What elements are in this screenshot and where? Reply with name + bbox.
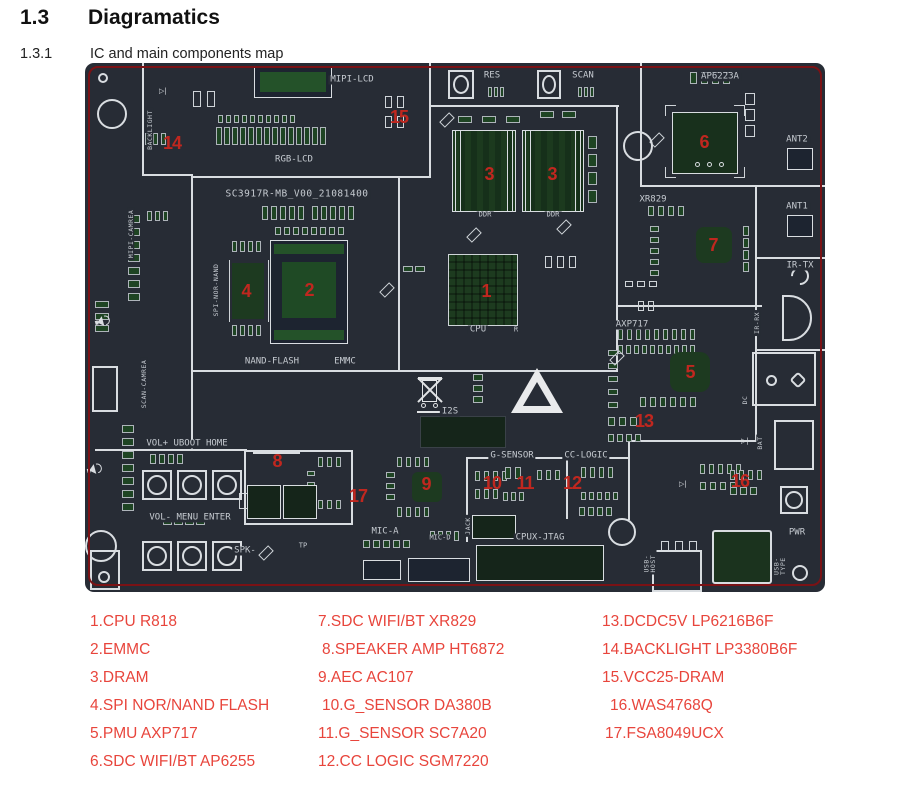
component-pad (537, 470, 542, 480)
ir-tx-label: IR-TX (784, 262, 815, 271)
trace-line (191, 174, 193, 451)
component-pad (95, 301, 109, 308)
marker-12: 12 (563, 474, 581, 492)
component-pad (256, 325, 261, 336)
mipi-lcd-label: MIPI-LCD (328, 76, 375, 85)
component-pad (406, 457, 411, 467)
component-pad (743, 238, 749, 248)
ap6223a-label: AP6223A (699, 73, 741, 82)
component-pad (650, 397, 656, 407)
component-pad (626, 345, 631, 354)
component-pad (660, 397, 666, 407)
component-pad (634, 345, 639, 354)
component-pad (274, 115, 279, 123)
component-pad (636, 329, 641, 340)
component-pad (650, 259, 659, 265)
component-pad (150, 454, 156, 464)
component-pad (690, 72, 697, 84)
component-pad (266, 115, 271, 123)
component-pad (650, 248, 659, 254)
axp717-label: AXP717 (614, 321, 651, 330)
trace-line (429, 105, 619, 107)
legend-item: 6.SDC WIFI/BT AP6255 (90, 748, 269, 776)
component-pad (710, 482, 716, 490)
tp-label: TP (297, 543, 309, 550)
bottom-pin-connector (408, 558, 470, 582)
component-pad (613, 492, 618, 500)
component-pad (700, 464, 705, 474)
component-pad (588, 507, 594, 516)
component-pad (339, 206, 345, 220)
component-pad (264, 127, 270, 145)
component-pad (663, 329, 668, 340)
component-pad (606, 507, 612, 516)
spk-label: SPK- (232, 547, 258, 556)
component-pad (302, 227, 308, 235)
component-pad (473, 396, 483, 403)
component-pad (258, 115, 263, 123)
component-pad (690, 329, 695, 340)
component-pad (424, 457, 429, 467)
pwr-label: PWR (787, 529, 807, 538)
component-pad (383, 540, 390, 548)
component-pad (681, 329, 686, 340)
component-pad (280, 206, 286, 220)
component-pad (588, 154, 597, 167)
bat-label: BAT (757, 434, 764, 451)
component-pad (556, 219, 572, 235)
mounting-hole (97, 99, 127, 129)
component-pad (312, 127, 318, 145)
component-pad (617, 434, 623, 442)
component-pad (250, 115, 255, 123)
dc-connector (752, 352, 816, 406)
component-pad (750, 487, 757, 495)
legend-item: 16.WAS4768Q (602, 692, 797, 720)
component-pad (240, 325, 245, 336)
section-title: Diagramatics (88, 6, 220, 30)
mipi-camera-label: MIPI-CAMREA (128, 208, 135, 261)
component-pad (122, 451, 134, 459)
component-pad (393, 540, 400, 548)
component-pad (680, 397, 686, 407)
component-pad (193, 91, 201, 107)
legend-column-2: 7.SDC WIFI/BT XR829 8.SPEAKER AMP HT6872… (318, 608, 504, 776)
component-pad (666, 345, 671, 354)
component-pad (473, 385, 483, 392)
menu-button (177, 541, 207, 571)
marker-10: 10 (483, 474, 501, 492)
component-pad (122, 503, 134, 511)
component-pad (597, 507, 603, 516)
chip-dot (695, 162, 700, 167)
component-pad (608, 417, 615, 426)
uboot-button (177, 470, 207, 500)
battery-connector (774, 420, 814, 470)
component-pad (555, 470, 560, 480)
component-pad (147, 211, 152, 221)
component-pad (743, 262, 749, 272)
component-pad (546, 470, 551, 480)
component-pad (232, 127, 238, 145)
component-pad (262, 206, 268, 220)
mounting-hole (98, 73, 108, 83)
component-pad (406, 507, 411, 517)
scan-button (537, 70, 561, 99)
component-pad (605, 492, 610, 500)
component-pad (298, 206, 304, 220)
component-pad (488, 87, 492, 97)
i2s-label: I2S (440, 408, 460, 417)
usb-type-connector (712, 530, 772, 584)
component-pad (581, 467, 586, 478)
cpux-jtag-connector (476, 545, 604, 581)
component-pad (320, 127, 326, 145)
component-pad (216, 127, 222, 145)
component-pad (327, 457, 332, 467)
component-pad (163, 211, 168, 221)
emmc-chip-strip (274, 244, 344, 254)
mounting-hole (608, 518, 636, 546)
component-pad (327, 500, 332, 509)
marker-13: 13 (635, 412, 653, 430)
component-pad (640, 397, 646, 407)
scan-label: SCAN (570, 72, 596, 81)
emmc-chip-strip (274, 330, 344, 340)
cpux-jtag-label: CPUX-JTAG (514, 534, 567, 543)
component-pad (329, 227, 335, 235)
component-pad (745, 93, 755, 105)
component-pad (338, 227, 344, 235)
spi-nor-nand-label: SPI-NOR-NAND (213, 262, 220, 319)
usb-host-label: USB-HOST (644, 540, 657, 575)
scan-camera-connector (92, 366, 118, 412)
marker-3a: 3 (484, 165, 493, 183)
marker-1: 1 (481, 282, 490, 300)
jack-label: JACK (465, 515, 472, 537)
component-pad (159, 454, 165, 464)
component-pad (757, 470, 762, 480)
legend-item: 17.FSA8049UCX (602, 720, 797, 748)
component-pad (511, 492, 516, 501)
marker-17: 17 (349, 487, 367, 505)
component-pad (218, 115, 223, 123)
component-pad (155, 211, 160, 221)
scan-camera-label: SCAN-CAMREA (141, 358, 148, 411)
legend-item: 11.G_SENSOR SC7A20 (318, 720, 504, 748)
component-pad (363, 540, 370, 548)
component-pad (709, 464, 714, 474)
component-pad (397, 507, 402, 517)
legend-item: 15.VCC25-DRAM (602, 664, 797, 692)
subsection-number: 1.3.1 (20, 46, 52, 62)
component-pad (648, 301, 654, 311)
marker-15: 15 (390, 108, 408, 126)
marker-14: 14 (163, 134, 181, 152)
component-pad (650, 237, 659, 243)
component-pad (232, 241, 237, 252)
component-pad (562, 111, 576, 118)
component-pad (386, 483, 395, 489)
component-pad (128, 267, 140, 275)
component-pad (232, 325, 237, 336)
trace-line (755, 349, 825, 351)
component-pad (240, 241, 245, 252)
legend-column-1: 1.CPU R818 2.EMMC 3.DRAM 4.SPI NOR/NAND … (90, 608, 269, 776)
section-number: 1.3 (20, 6, 49, 30)
ant2-label: ANT2 (784, 136, 810, 145)
component-pad (311, 227, 317, 235)
component-pad (373, 540, 380, 548)
component-pad (626, 434, 632, 442)
component-pad (122, 438, 134, 446)
component-pad (745, 125, 755, 137)
marker-5: 5 (685, 363, 694, 381)
component-pad (275, 227, 281, 235)
legend-item: 2.EMMC (90, 636, 269, 664)
reset-button (448, 70, 474, 99)
pcb-diagram: ▷| ▷| ▷| BACKLIGHT MIPI-CAMREA SCAN-CAMR… (85, 63, 825, 592)
trace-line (244, 523, 353, 525)
marker-7: 7 (708, 236, 717, 254)
marker-16: 16 (731, 472, 749, 490)
ddr-label: DDR (545, 212, 562, 219)
component-pad (293, 227, 299, 235)
ant1-pad (787, 215, 813, 237)
component-pad (282, 115, 287, 123)
trace-line (142, 63, 144, 175)
power-button (780, 486, 808, 514)
trace-line (429, 63, 431, 178)
mounting-hole (792, 565, 808, 581)
legend-item: 4.SPI NOR/NAND FLASH (90, 692, 269, 720)
component-pad (743, 226, 749, 236)
component-pad (505, 467, 511, 479)
trace-line (142, 174, 192, 176)
component-pad (336, 457, 341, 467)
component-pad (588, 190, 597, 203)
dc-hole (766, 375, 777, 386)
component-pad (415, 266, 425, 272)
component-pad (718, 464, 723, 474)
component-pad (590, 467, 595, 478)
component-pad (588, 172, 597, 185)
component-pad (122, 425, 134, 433)
component-pad (619, 417, 626, 426)
mic-d-label: MIC-D (427, 535, 452, 542)
component-pad (645, 329, 650, 340)
component-pad (336, 500, 341, 509)
legend-item: 9.AEC AC107 (318, 664, 504, 692)
component-pad (540, 111, 554, 118)
component-pad (642, 345, 647, 354)
jack-connector (472, 515, 516, 539)
res-label: RES (482, 72, 502, 81)
component-pad (234, 115, 239, 123)
legend-item: 14.BACKLIGHT LP3380B6F (602, 636, 797, 664)
mic-connector (363, 560, 401, 580)
component-pad (320, 227, 326, 235)
component-pad (415, 507, 420, 517)
component-pad (650, 270, 659, 276)
component-pad (128, 293, 140, 301)
component-pad (545, 256, 552, 268)
vol-dn-row-label: VOL- MENU ENTER (147, 514, 232, 523)
legend-item: 3.DRAM (90, 664, 269, 692)
diode-symbol: ▷| (679, 480, 687, 488)
component-pad (608, 389, 618, 395)
component-pad (226, 115, 231, 123)
component-pad (256, 241, 261, 252)
component-pad (248, 325, 253, 336)
component-pad (649, 281, 657, 287)
component-pad (627, 329, 632, 340)
component-pad (290, 115, 295, 123)
component-pad (321, 206, 327, 220)
trace-line (398, 176, 400, 372)
component-pad (153, 133, 158, 145)
component-pad (494, 87, 498, 97)
component-pad (743, 250, 749, 260)
component-pad (475, 489, 480, 499)
component-pad (473, 374, 483, 381)
component-pad (272, 127, 278, 145)
cc-logic-label: CC-LOGIC (562, 452, 609, 461)
ddr-label: DDR (477, 212, 494, 219)
marker-3b: 3 (547, 165, 556, 183)
component-pad (284, 227, 290, 235)
component-pad (386, 494, 395, 500)
component-pad (658, 206, 664, 216)
component-pad (122, 477, 134, 485)
component-pad (584, 87, 588, 97)
component-pad (248, 127, 254, 145)
component-pad (618, 329, 623, 340)
component-pad (207, 91, 215, 107)
home-button (212, 470, 242, 500)
cpu-label: CPU (468, 326, 488, 335)
component-pad (590, 87, 594, 97)
component-pad (650, 345, 655, 354)
component-pad (242, 115, 247, 123)
mounting-hole (623, 131, 653, 161)
trace-line (640, 63, 642, 187)
component-pad (168, 454, 174, 464)
subsection-title: IC and main components map (90, 46, 283, 62)
legend-item: 1.CPU R818 (90, 608, 269, 636)
component-pad (424, 507, 429, 517)
component-pad (608, 376, 618, 382)
component-pad (271, 206, 277, 220)
component-pad (312, 206, 318, 220)
component-pad (288, 127, 294, 145)
vol-plus-button (142, 470, 172, 500)
ant1-label: ANT1 (784, 203, 810, 212)
component-pad (258, 545, 274, 561)
component-pad (668, 206, 674, 216)
component-pad (690, 397, 696, 407)
component-pad (745, 109, 755, 121)
usb-type-label: USB-TYPE (774, 547, 787, 577)
ant2-pad (787, 148, 813, 170)
component-pad (578, 87, 582, 97)
vol-minus-button (142, 541, 172, 571)
component-pad (330, 206, 336, 220)
component-pad (318, 457, 323, 467)
trace-line (755, 257, 825, 259)
diode-symbol: ▷| (159, 87, 167, 95)
marker-2: 2 (304, 281, 313, 299)
component-pad (506, 116, 520, 123)
component-pad (466, 227, 482, 243)
component-pad (648, 206, 654, 216)
component-pad (224, 127, 230, 145)
component-pad (579, 507, 585, 516)
component-pad (318, 500, 323, 509)
component-pad (458, 116, 472, 123)
component-pad (454, 531, 459, 541)
document-page: 1.3 Diagramatics 1.3.1 IC and main compo… (0, 0, 908, 790)
i2s-block (420, 416, 506, 448)
component-pad (625, 281, 633, 287)
component-pad (608, 434, 614, 442)
marker-11: 11 (516, 474, 533, 492)
vol-up-row-label: VOL+ UBOOT HOME (144, 440, 229, 449)
component-pad (296, 127, 302, 145)
trace-line (244, 450, 246, 525)
component-pad (122, 464, 134, 472)
legend-item: 7.SDC WIFI/BT XR829 (318, 608, 504, 636)
component-pad (650, 226, 659, 232)
board-title: SC3917R-MB_V00_21081400 (223, 189, 370, 199)
chip-dot (719, 162, 724, 167)
component-pad (720, 482, 726, 490)
rgb-lcd-label: RGB-LCD (273, 156, 315, 165)
component-pad (403, 266, 413, 272)
speaker-transformer (247, 485, 281, 519)
speaker-transformer (283, 485, 317, 519)
component-pad (304, 127, 310, 145)
mipi-lcd-connector-pad (260, 72, 326, 92)
component-pad (128, 280, 140, 288)
component-pad (670, 397, 676, 407)
component-pad (638, 301, 644, 311)
legend-item: 10.G_SENSOR DA380B (318, 692, 504, 720)
trace-line (191, 176, 431, 178)
g-sensor-label: G-SENSOR (488, 452, 535, 461)
legend-item: 12.CC LOGIC SGM7220 (318, 748, 504, 776)
nand-flash-label: NAND-FLASH (243, 358, 301, 367)
legend-item: 8.SPEAKER AMP HT6872 (318, 636, 504, 664)
trace-line (640, 185, 825, 187)
component-pad (439, 112, 455, 128)
component-pad (122, 490, 134, 498)
component-pad (597, 492, 602, 500)
usb-host-connector (652, 550, 702, 592)
ir-rx-label: IR-RX (754, 310, 761, 336)
component-pad (700, 482, 706, 490)
component-pad (672, 329, 677, 340)
component-pad (503, 492, 508, 501)
mic-a-label: MIC-A (369, 528, 400, 537)
xr829-label: XR829 (637, 196, 668, 205)
component-pad (519, 492, 524, 501)
component-pad (599, 467, 604, 478)
component-pad (608, 402, 618, 408)
marker-6: 6 (699, 133, 708, 151)
legend-item: 5.PMU AXP717 (90, 720, 269, 748)
component-pad (588, 136, 597, 149)
